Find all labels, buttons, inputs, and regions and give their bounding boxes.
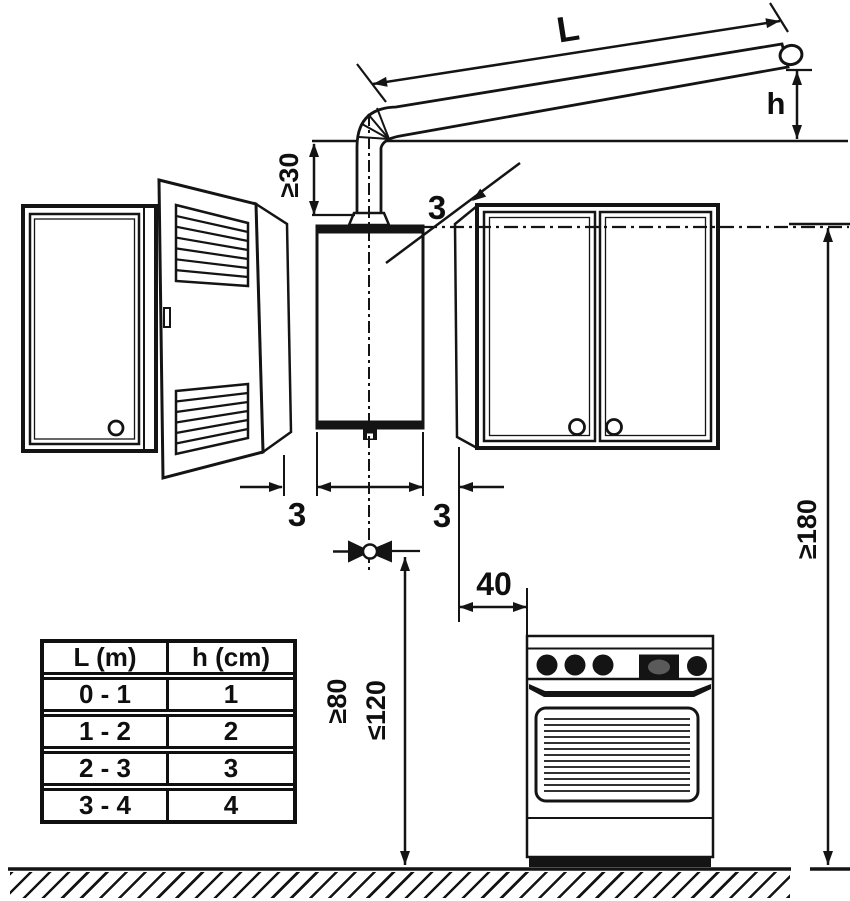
valve-height-min-label: ≥80 [322,659,352,743]
table-header-h: h (cm) [166,643,293,672]
flue-pipe [349,43,804,225]
table-row: 2 - 3 3 [44,751,293,786]
table-cell-L: 0 - 1 [44,680,166,709]
stove-knob [687,656,707,676]
left-cabinet [23,180,291,478]
door-handle-slot [164,308,170,327]
table-cell-h: 3 [166,754,293,783]
heater-top-height-label: ≥180 [792,476,822,582]
flue-vertical-min-label: ≥30 [274,138,304,212]
left-cabinet-open-door [159,180,291,478]
table-cell-L: 1 - 2 [44,717,166,746]
flue-length-label: L [540,4,596,53]
stove-knob [593,655,614,676]
table-row: 0 - 1 1 [44,677,293,712]
left-cabinet-knob [109,421,123,435]
valve-height-max-label: ≤120 [361,657,391,763]
stove [527,636,713,867]
table-header-L: L (m) [44,643,166,672]
table-cell-L: 3 - 4 [44,791,166,820]
stove-knob [565,655,586,676]
gap-right-label: 3 [426,497,458,533]
stove-base [529,857,711,867]
gap-left-label: 3 [281,496,313,532]
table-cell-h: 2 [166,717,293,746]
table-row: 1 - 2 2 [44,714,293,749]
gap-top-label: 3 [421,189,453,225]
table-cell-L: 2 - 3 [44,754,166,783]
right-cabinet [455,205,718,448]
installation-diagram: L h ≥30 3 3 3 40 ≥80 ≤120 ≥180 L (m) h (… [0,0,850,901]
stove-knob [537,655,558,676]
table-header-row: L (m) h (cm) [44,643,293,675]
right-cabinet-knob-left [570,420,585,435]
flue-height-label: h [758,85,794,121]
table-cell-h: 1 [166,680,293,709]
stove-clearance-label: 40 [470,566,518,602]
flue-slope-table: L (m) h (cm) 0 - 1 1 1 - 2 2 2 - 3 3 3 -… [40,639,297,824]
table-cell-h: 4 [166,791,293,820]
table-row: 3 - 4 4 [44,788,293,820]
right-cabinet-knob-right [607,420,622,435]
ground-hatching [10,872,790,898]
gas-valve-icon [333,542,391,561]
